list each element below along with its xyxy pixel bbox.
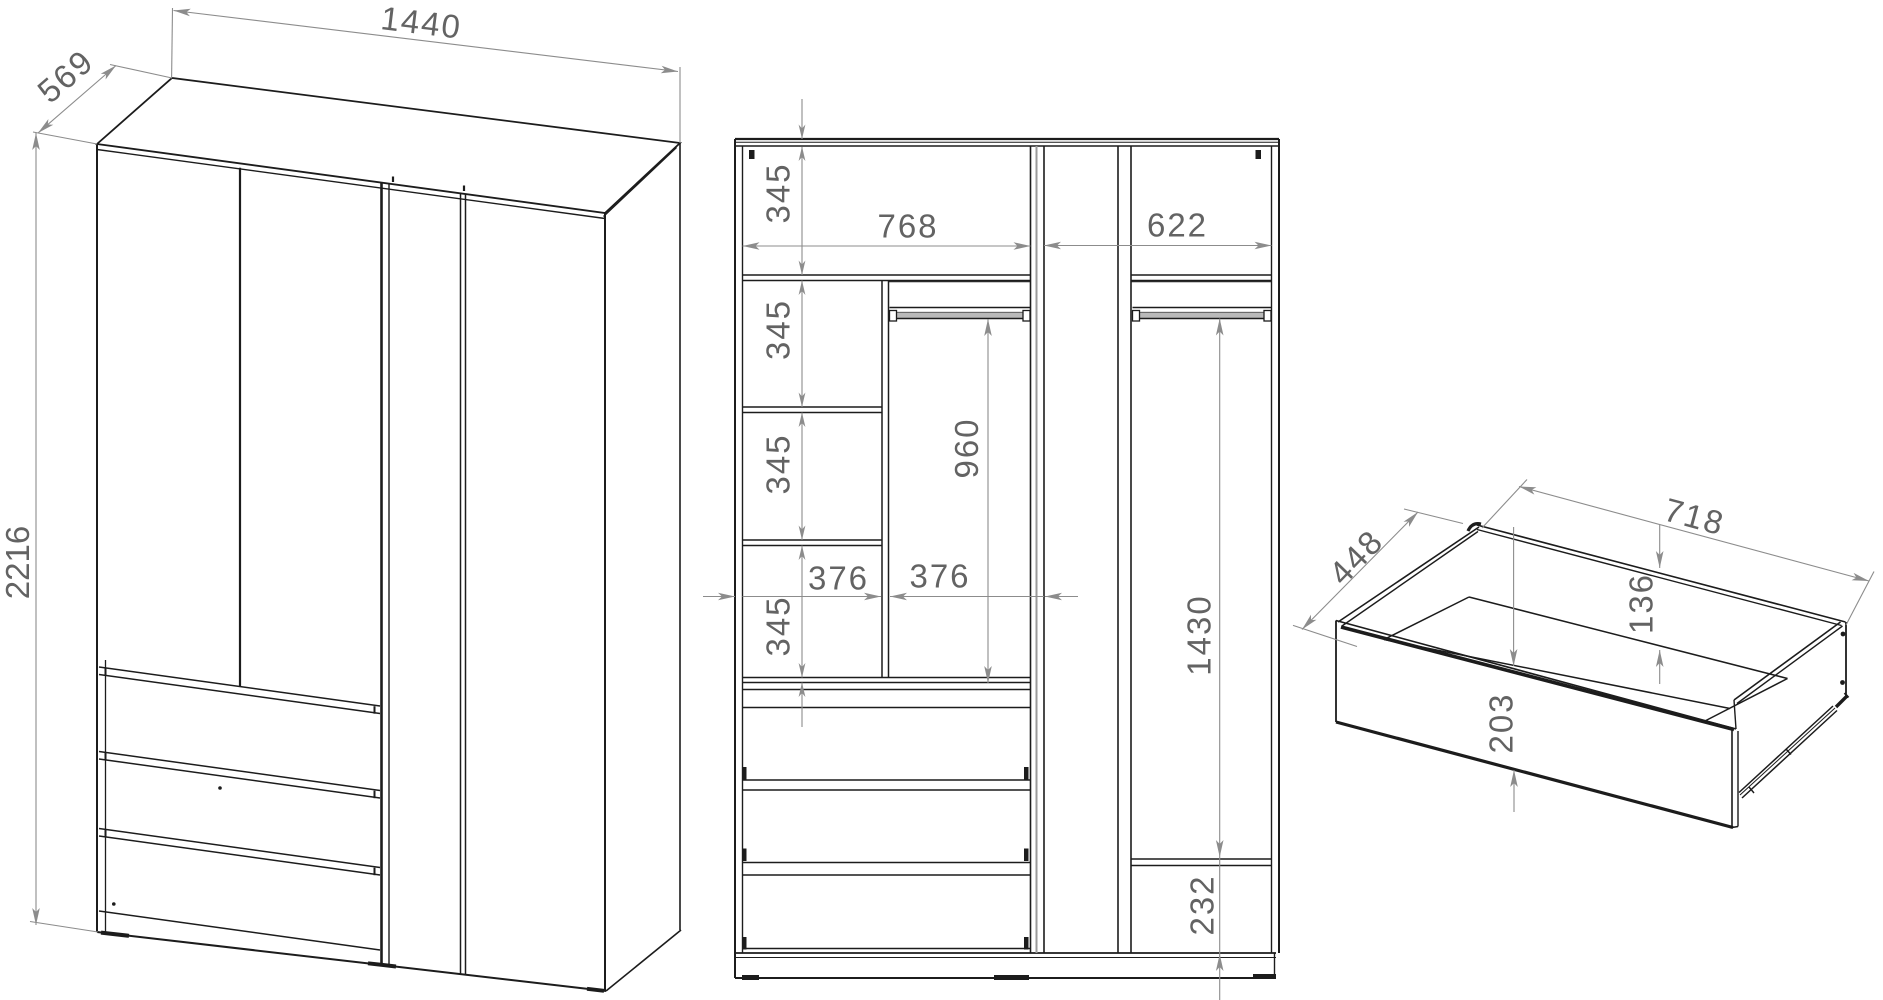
svg-text:345: 345 [760, 595, 797, 656]
svg-text:345: 345 [760, 299, 797, 360]
svg-text:1430: 1430 [1181, 594, 1218, 675]
svg-text:345: 345 [760, 433, 797, 494]
svg-text:768: 768 [877, 208, 938, 245]
svg-text:203: 203 [1483, 692, 1520, 753]
svg-text:960: 960 [948, 417, 985, 478]
svg-text:622: 622 [1147, 207, 1208, 244]
svg-text:376: 376 [909, 558, 970, 595]
svg-text:136: 136 [1623, 573, 1660, 634]
svg-text:2216: 2216 [0, 526, 36, 599]
svg-text:232: 232 [1184, 874, 1221, 935]
svg-text:376: 376 [808, 560, 869, 597]
svg-text:345: 345 [760, 162, 797, 223]
